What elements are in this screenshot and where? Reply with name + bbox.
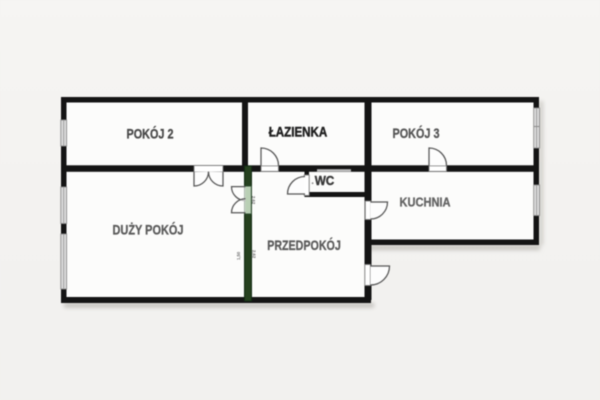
svg-text:PRZEDPOKÓJ: PRZEDPOKÓJ bbox=[267, 238, 341, 253]
svg-text:KUCHNIA: KUCHNIA bbox=[400, 196, 451, 210]
svg-text:POKÓJ 3: POKÓJ 3 bbox=[393, 126, 440, 141]
svg-text:2,62: 2,62 bbox=[252, 250, 257, 259]
svg-text:DUŻY POKÓJ: DUŻY POKÓJ bbox=[113, 223, 184, 238]
svg-text:ŁAZIENKA: ŁAZIENKA bbox=[269, 125, 328, 140]
svg-text:WC: WC bbox=[315, 174, 335, 188]
svg-text:POKÓJ 2: POKÓJ 2 bbox=[127, 127, 174, 142]
svg-text:2,62: 2,62 bbox=[251, 196, 256, 205]
svg-text:1,50: 1,50 bbox=[236, 251, 241, 260]
